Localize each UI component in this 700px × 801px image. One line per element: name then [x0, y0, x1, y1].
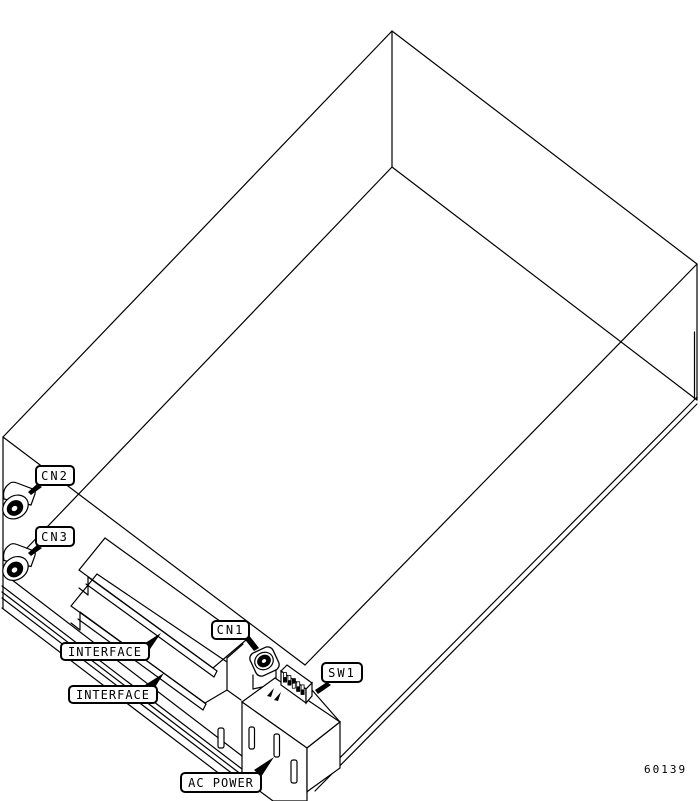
cn3-connector — [0, 544, 35, 586]
chassis-rear-view-diagram: CN2 CN3 CN1 SW1 INTERFACE INTERFACE AC P… — [0, 0, 700, 801]
ac-power-label: AC POWER — [180, 772, 262, 793]
cn2-label: CN2 — [35, 465, 75, 486]
sw1-label: SW1 — [321, 662, 363, 683]
cn2-connector — [0, 482, 35, 524]
interface-bottom-label: INTERFACE — [68, 685, 158, 704]
panel-vent-slot — [218, 728, 224, 748]
cn3-label: CN3 — [35, 526, 75, 547]
cn1-label: CN1 — [211, 620, 250, 640]
figure-number: 60139 — [644, 763, 687, 776]
interface-top-label: INTERFACE — [60, 642, 150, 661]
sw1-callout-tail — [315, 682, 331, 694]
